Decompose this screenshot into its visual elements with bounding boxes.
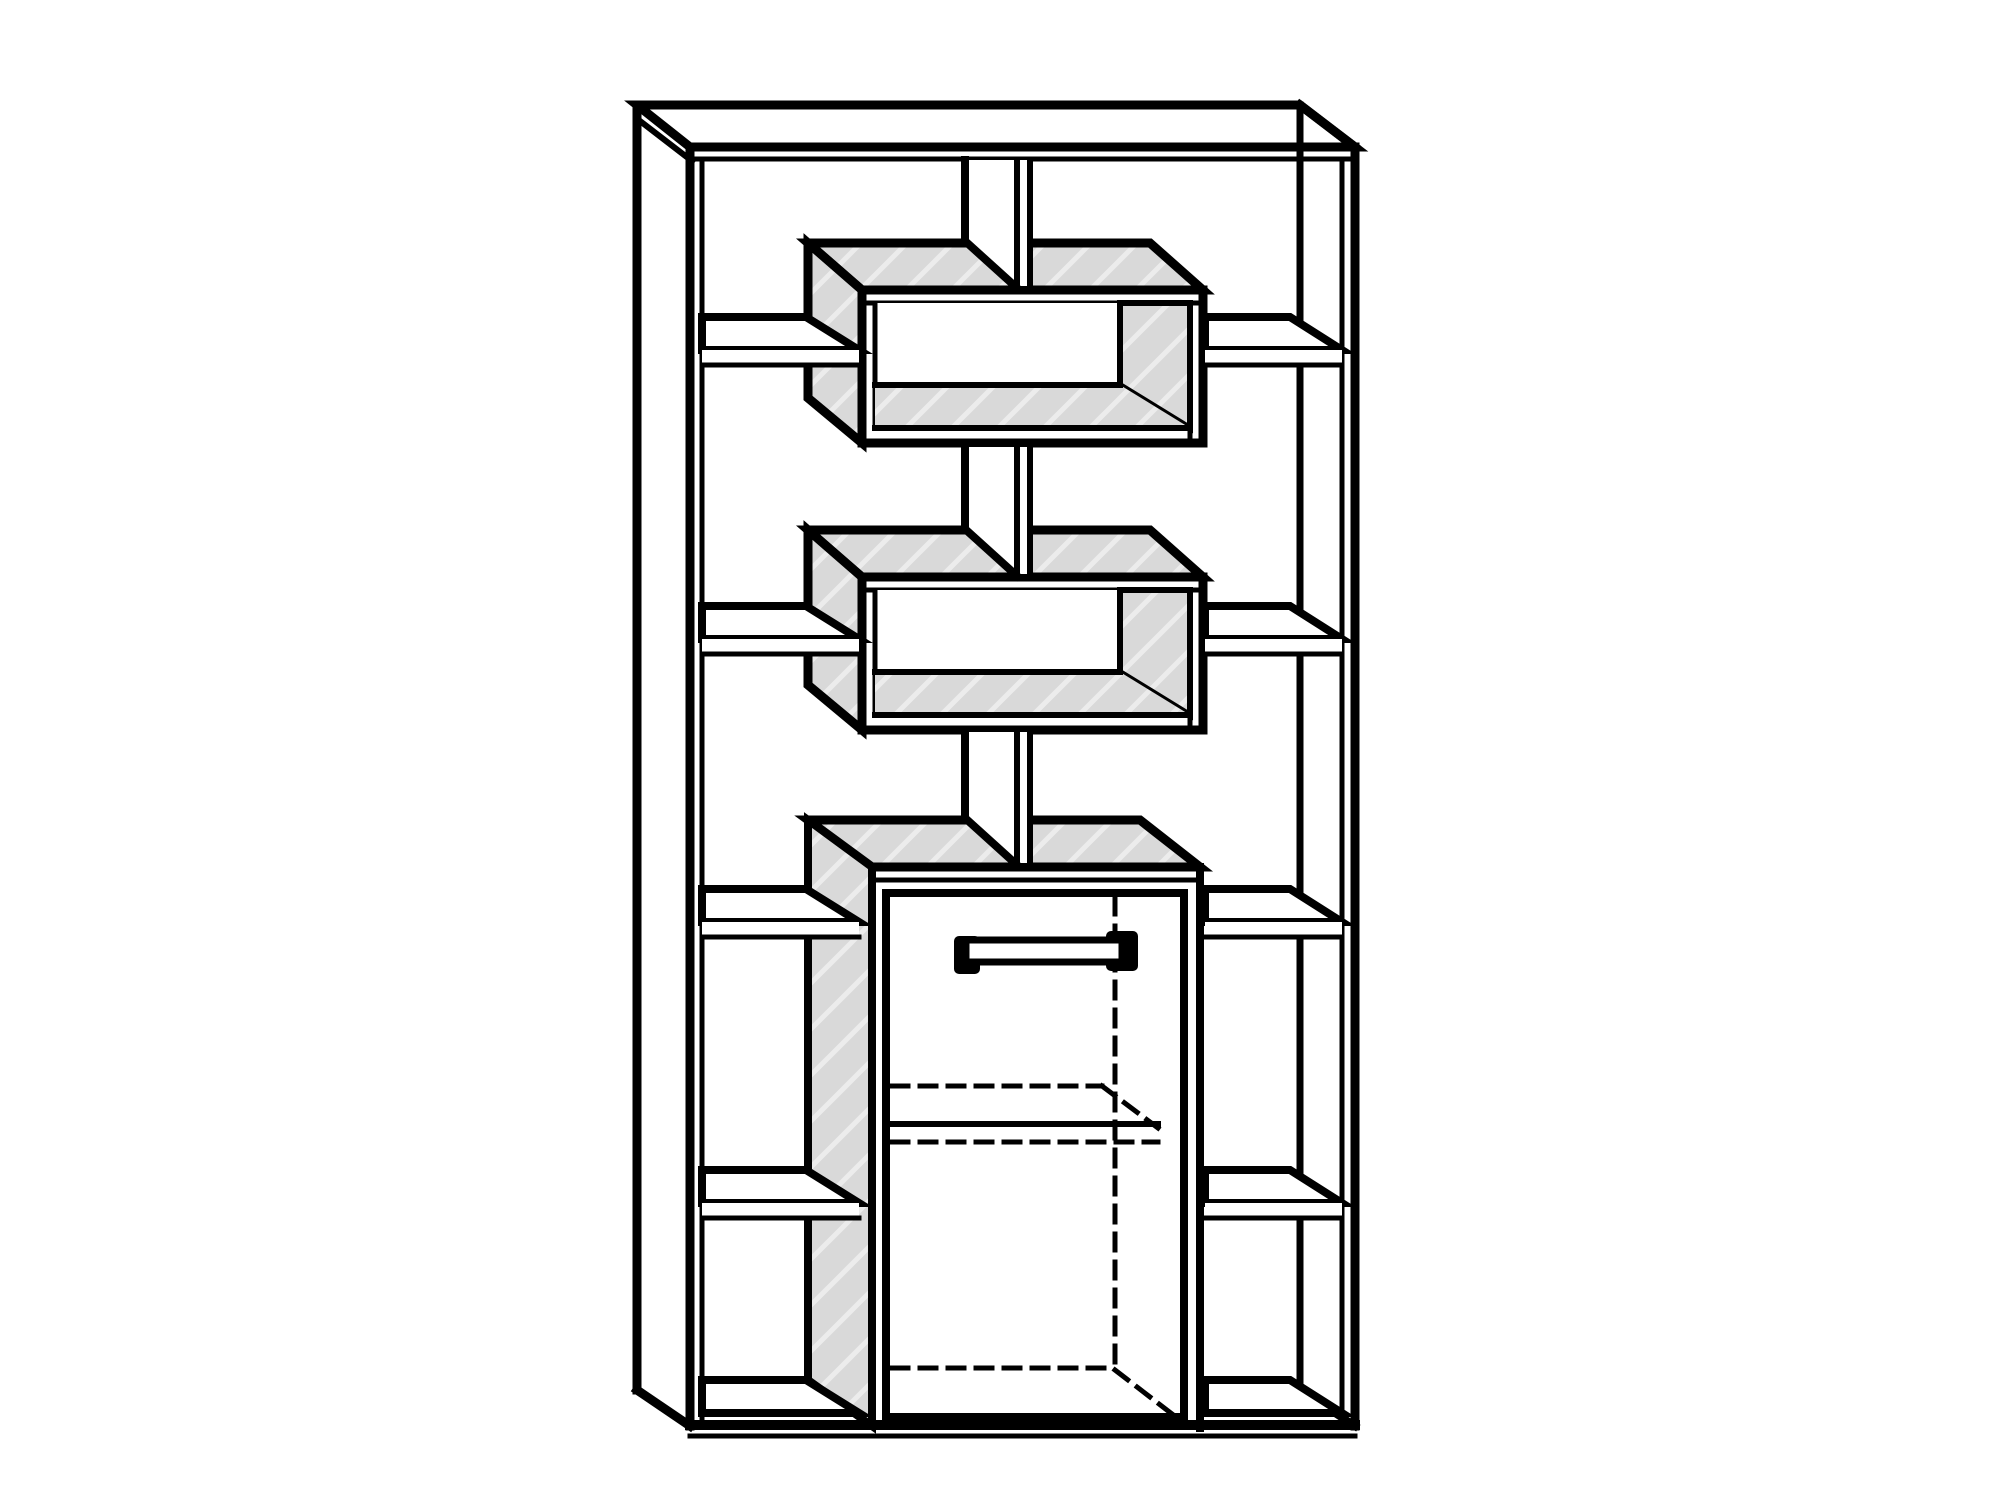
cabinet-door xyxy=(886,893,1184,1417)
drawing-canvas xyxy=(0,0,2000,1500)
handle-bar xyxy=(966,940,1122,962)
furniture-technical-drawing xyxy=(0,0,2000,1500)
